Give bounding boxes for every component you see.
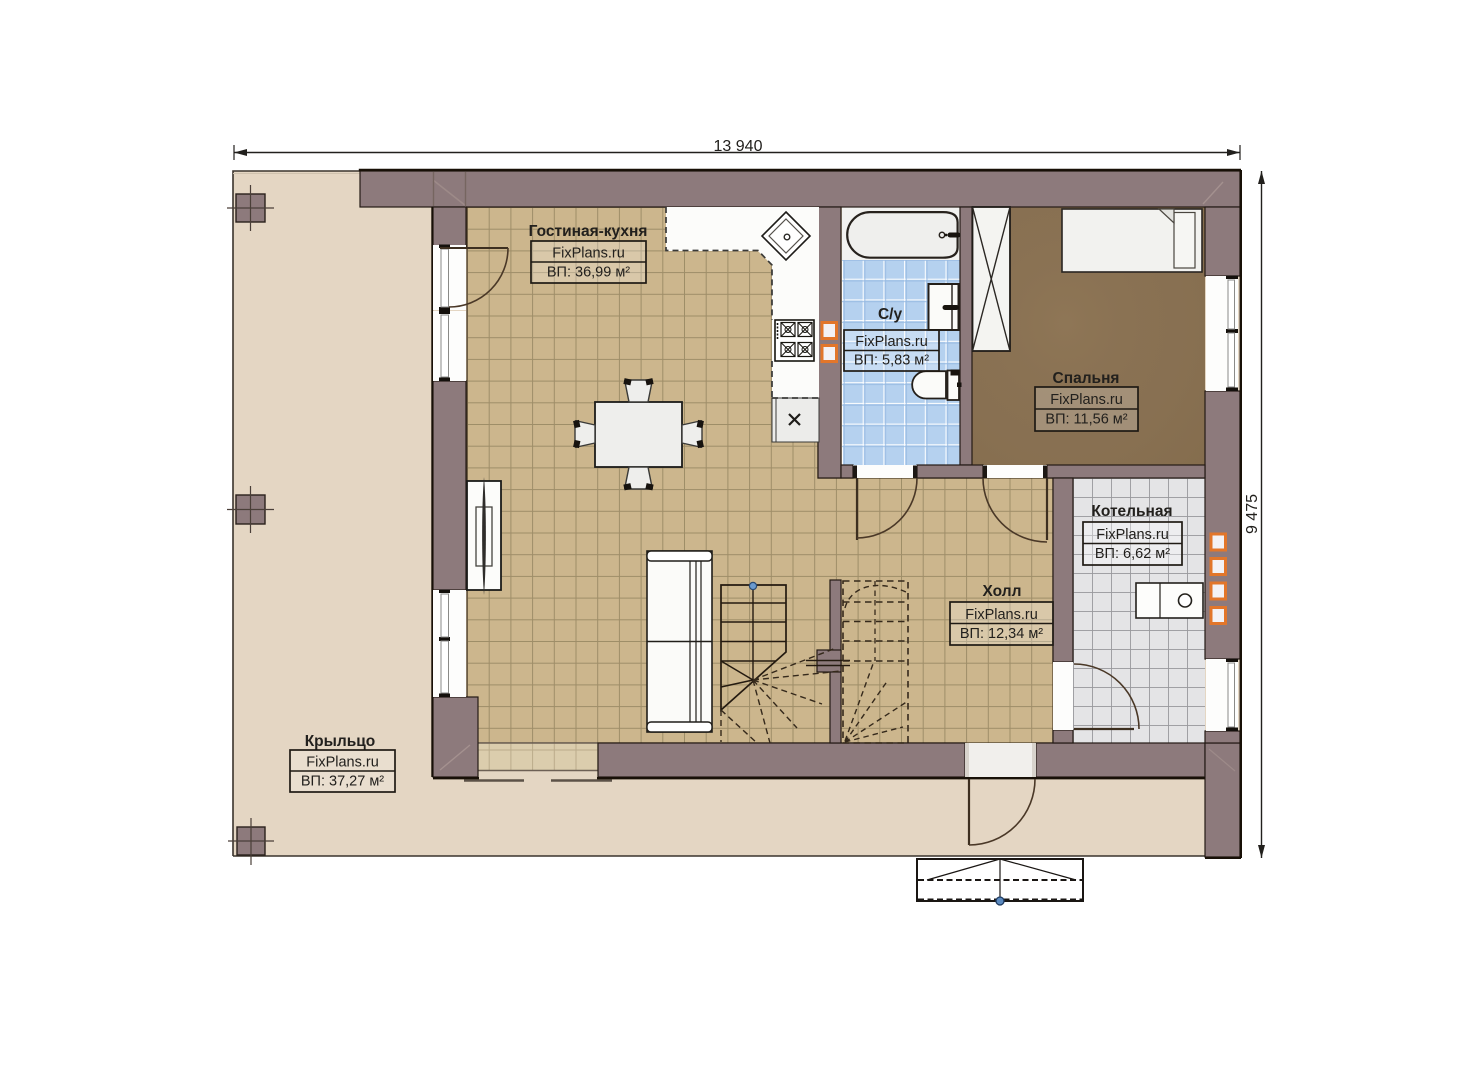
svg-text:ВП: 12,34 м²: ВП: 12,34 м² <box>960 626 1043 642</box>
svg-text:FixPlans.ru: FixPlans.ru <box>552 246 625 262</box>
svg-text:Котельная: Котельная <box>1091 503 1172 520</box>
svg-text:FixPlans.ru: FixPlans.ru <box>1096 527 1169 543</box>
svg-text:FixPlans.ru: FixPlans.ru <box>1050 392 1123 408</box>
svg-text:FixPlans.ru: FixPlans.ru <box>965 607 1038 623</box>
svg-text:ВП: 37,27 м²: ВП: 37,27 м² <box>301 774 384 790</box>
svg-text:FixPlans.ru: FixPlans.ru <box>306 755 379 771</box>
svg-text:9 475: 9 475 <box>1244 494 1261 534</box>
svg-text:FixPlans.ru: FixPlans.ru <box>855 334 928 350</box>
svg-text:С/у: С/у <box>878 306 903 323</box>
svg-text:Гостиная-кухня: Гостиная-кухня <box>529 223 648 240</box>
svg-text:Крыльцо: Крыльцо <box>305 733 376 750</box>
svg-text:ВП: 36,99 м²: ВП: 36,99 м² <box>547 265 630 281</box>
svg-text:ВП: 6,62 м²: ВП: 6,62 м² <box>1095 546 1170 562</box>
svg-text:ВП: 5,83 м²: ВП: 5,83 м² <box>854 353 929 369</box>
svg-text:Спальня: Спальня <box>1053 370 1120 387</box>
svg-text:Холл: Холл <box>983 583 1022 600</box>
svg-text:ВП: 11,56 м²: ВП: 11,56 м² <box>1045 412 1127 428</box>
svg-text:13 940: 13 940 <box>714 138 763 155</box>
